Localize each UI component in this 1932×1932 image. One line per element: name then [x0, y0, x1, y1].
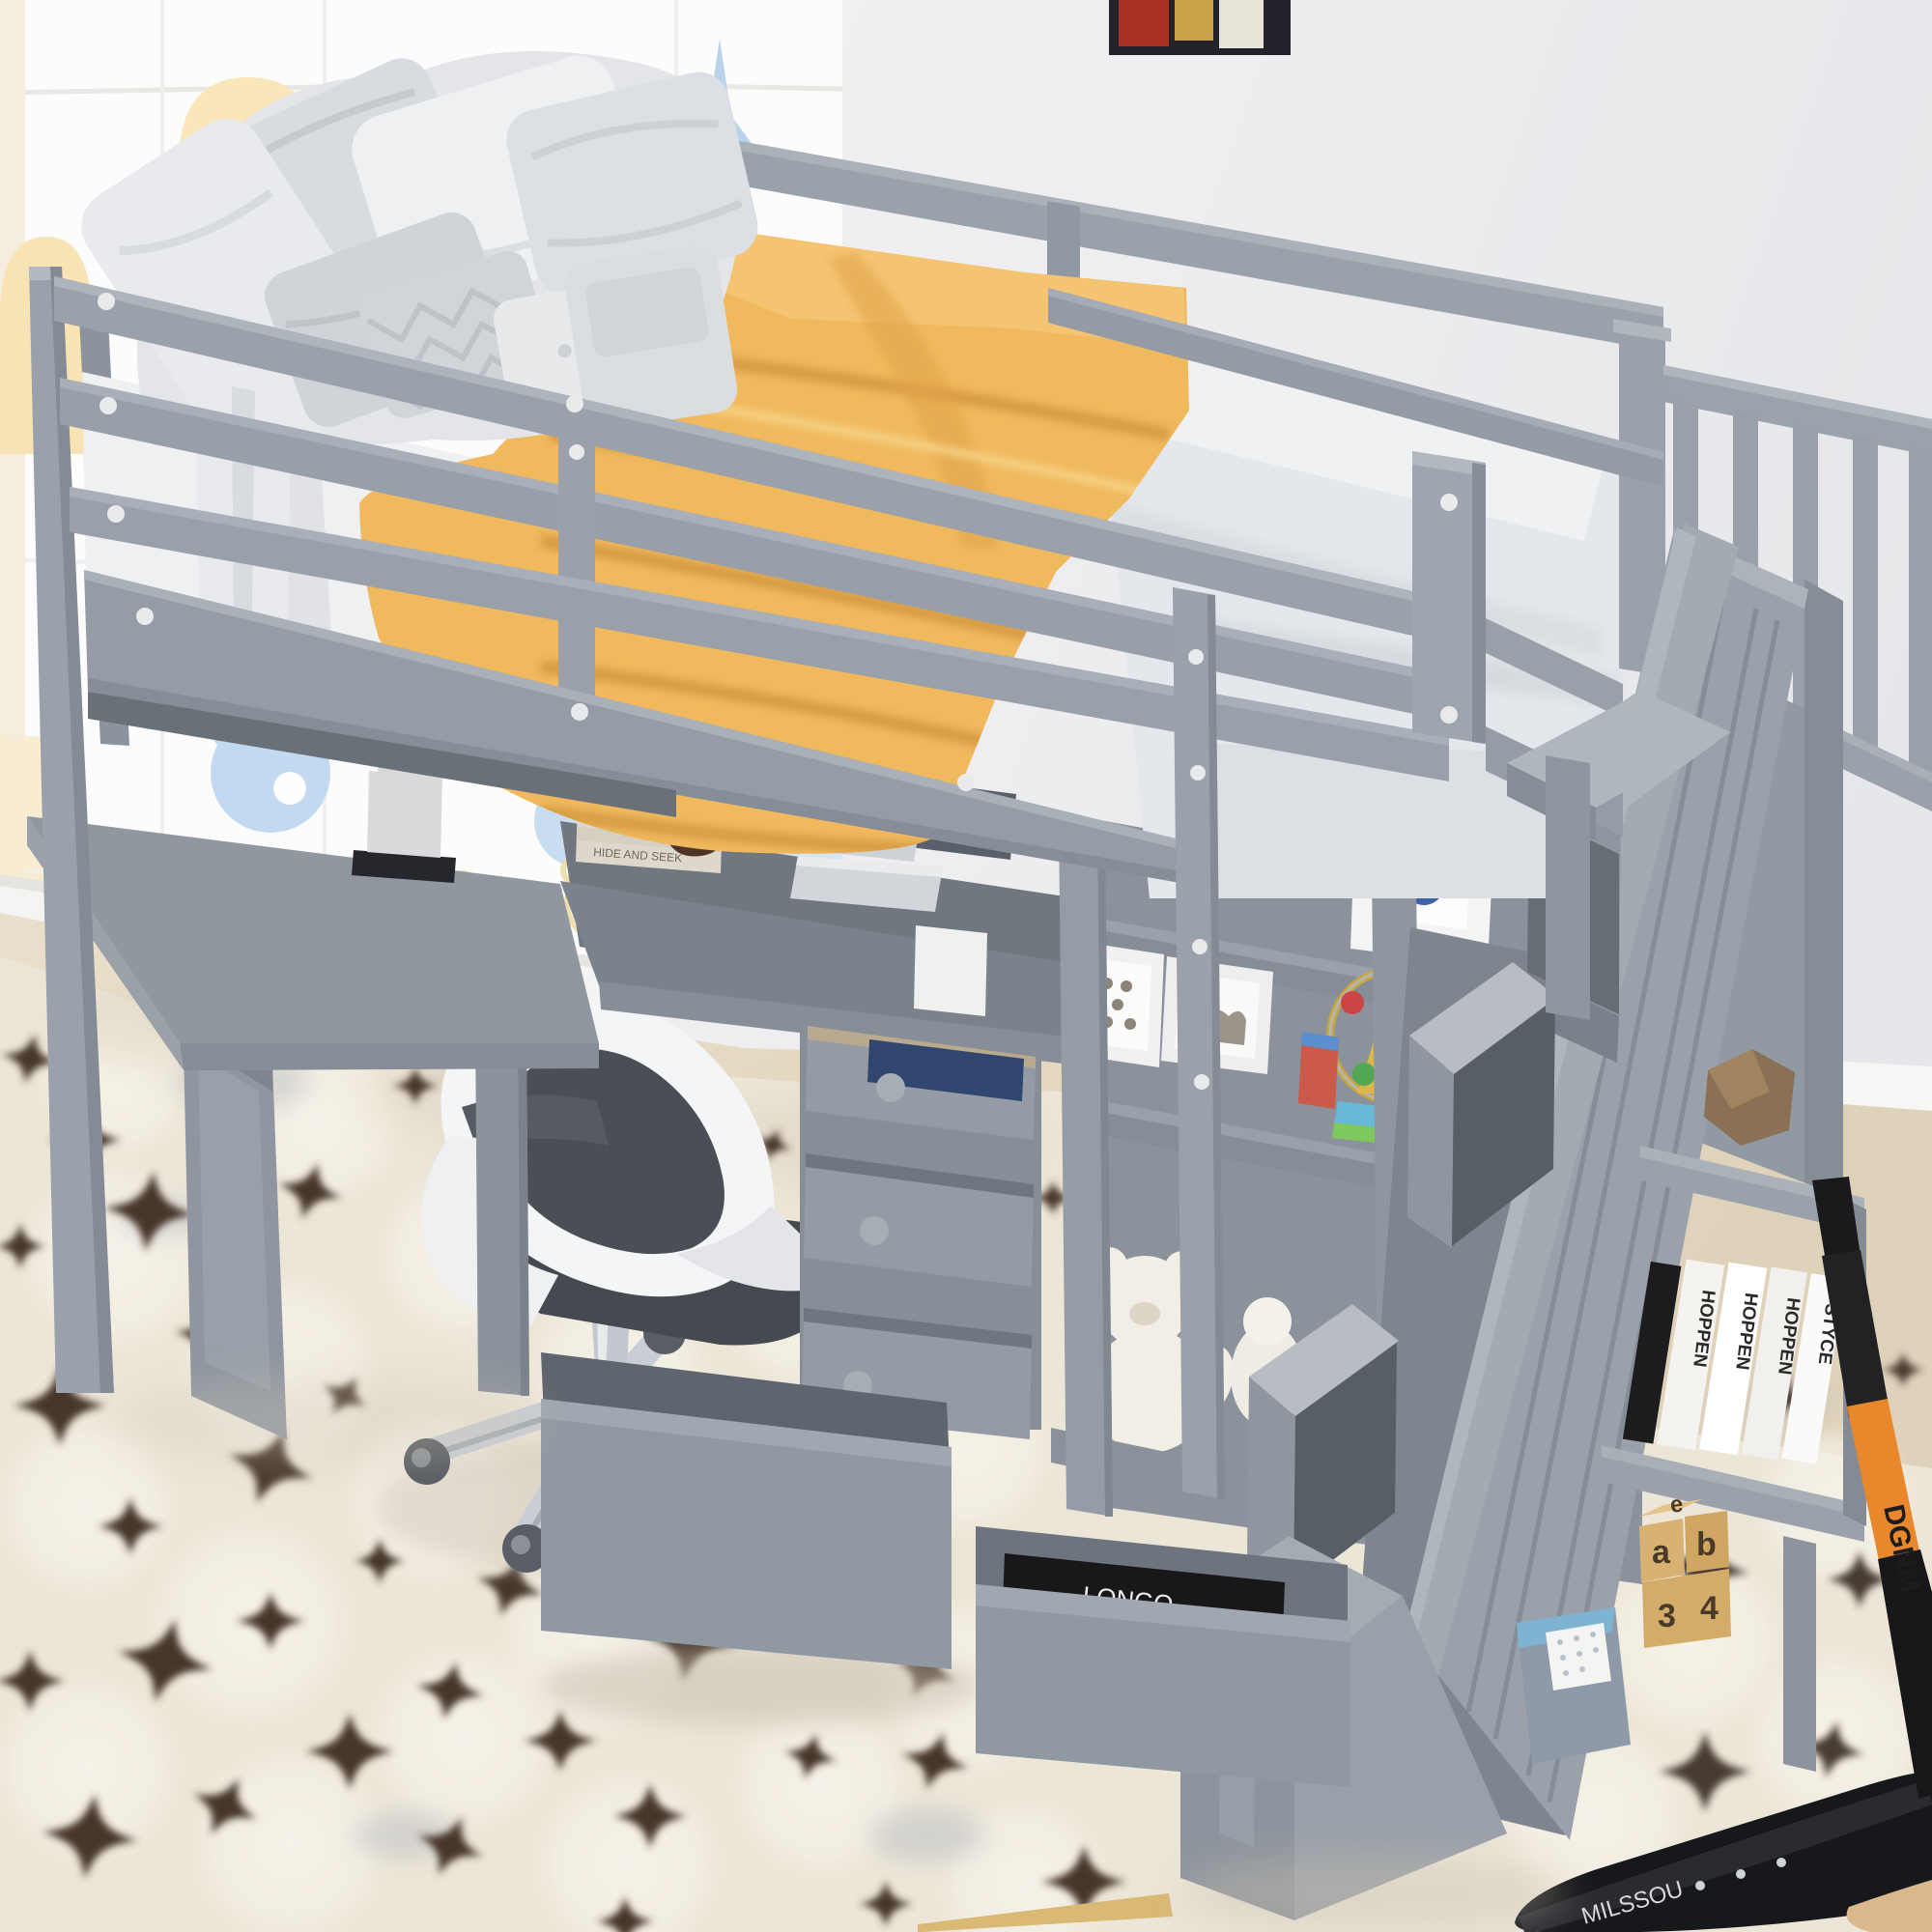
- svg-text:4: 4: [1700, 1590, 1719, 1627]
- svg-text:a: a: [1652, 1534, 1671, 1571]
- svg-text:b: b: [1696, 1526, 1717, 1563]
- svg-text:3: 3: [1658, 1598, 1676, 1634]
